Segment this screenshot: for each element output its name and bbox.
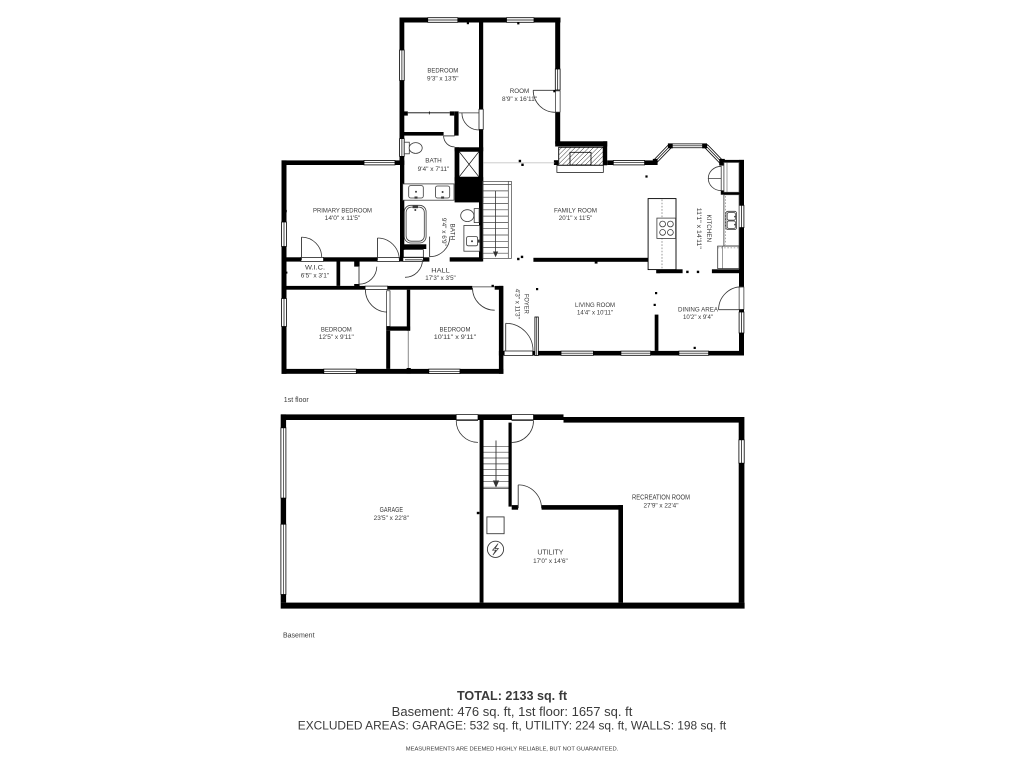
svg-text:4'3" x 11'3": 4'3" x 11'3" [514, 289, 521, 319]
svg-text:8'9" x 16'11": 8'9" x 16'11" [502, 96, 537, 103]
svg-text:9'4" x 6'9": 9'4" x 6'9" [440, 218, 447, 246]
svg-text:17'0" x 14'6": 17'0" x 14'6" [533, 558, 568, 565]
svg-text:BEDROOM: BEDROOM [427, 68, 458, 75]
svg-text:MEASUREMENTS ARE DEEMED HIGHLY: MEASUREMENTS ARE DEEMED HIGHLY RELIABLE,… [406, 746, 619, 752]
svg-text:23'5" x 22'8": 23'5" x 22'8" [374, 515, 410, 522]
svg-text:Basement: Basement [283, 632, 315, 639]
svg-text:9'3" x 13'5": 9'3" x 13'5" [427, 75, 459, 82]
svg-text:11'1" x 14'11": 11'1" x 14'11" [695, 208, 702, 249]
svg-text:27'9" x 22'4": 27'9" x 22'4" [644, 503, 680, 510]
svg-text:FOYER: FOYER [522, 294, 529, 314]
svg-text:14'4" x 10'11": 14'4" x 10'11" [577, 310, 613, 317]
svg-text:LIVING ROOM: LIVING ROOM [575, 302, 615, 309]
svg-text:EXCLUDED AREAS: GARAGE: 532 sq: EXCLUDED AREAS: GARAGE: 532 sq. ft, UTIL… [298, 719, 727, 733]
svg-text:KITCHEN: KITCHEN [705, 215, 712, 243]
svg-text:BATH: BATH [425, 157, 442, 164]
svg-text:DINING AREA: DINING AREA [678, 306, 719, 313]
svg-text:RECREATION ROOM: RECREATION ROOM [632, 494, 690, 501]
svg-text:Basement: 476 sq. ft, 1st floo: Basement: 476 sq. ft, 1st floor: 1657 sq… [392, 704, 633, 719]
svg-text:1st floor: 1st floor [284, 397, 310, 404]
svg-text:6'5" x 3'1": 6'5" x 3'1" [301, 272, 330, 279]
svg-text:BEDROOM: BEDROOM [321, 326, 352, 333]
svg-text:BEDROOM: BEDROOM [440, 326, 471, 333]
svg-text:10'11" x 9'11": 10'11" x 9'11" [434, 334, 477, 341]
svg-text:ROOM: ROOM [510, 88, 530, 95]
svg-text:FAMILY ROOM: FAMILY ROOM [554, 207, 597, 214]
svg-text:BATH: BATH [449, 224, 456, 241]
svg-text:GARAGE: GARAGE [380, 507, 404, 514]
svg-text:UTILITY: UTILITY [537, 550, 563, 557]
svg-text:12'5" x 9'11": 12'5" x 9'11" [319, 334, 354, 341]
svg-text:TOTAL: 2133 sq. ft: TOTAL: 2133 sq. ft [457, 689, 568, 703]
svg-text:HALL: HALL [431, 267, 450, 274]
svg-text:17'3" x 3'5": 17'3" x 3'5" [425, 275, 456, 282]
svg-text:PRIMARY BEDROOM: PRIMARY BEDROOM [313, 207, 372, 214]
svg-text:9'4" x 7'11": 9'4" x 7'11" [418, 166, 450, 173]
svg-text:10'2" x 9'4": 10'2" x 9'4" [683, 314, 713, 321]
svg-text:14'0" x 11'5": 14'0" x 11'5" [325, 215, 361, 222]
svg-text:W.I.C.: W.I.C. [305, 265, 325, 272]
svg-text:20'1" x 11'5": 20'1" x 11'5" [559, 215, 593, 222]
